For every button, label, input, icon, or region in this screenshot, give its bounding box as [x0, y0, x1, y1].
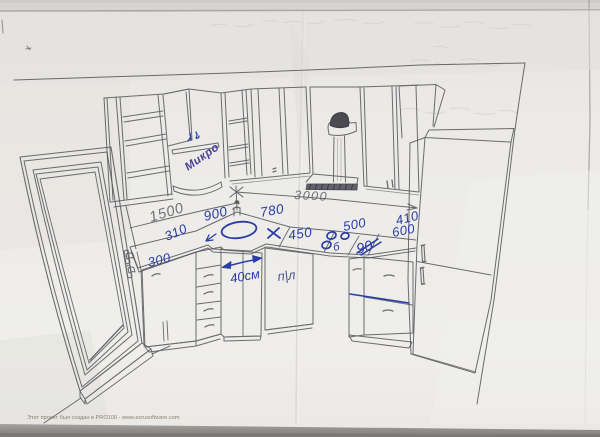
svg-text:Этот проект был создан в PRO10: Этот проект был создан в PRO100 - www.ec…: [27, 415, 180, 421]
svg-text:п|л: п|л: [277, 267, 297, 284]
svg-text:3000: 3000: [294, 188, 328, 204]
